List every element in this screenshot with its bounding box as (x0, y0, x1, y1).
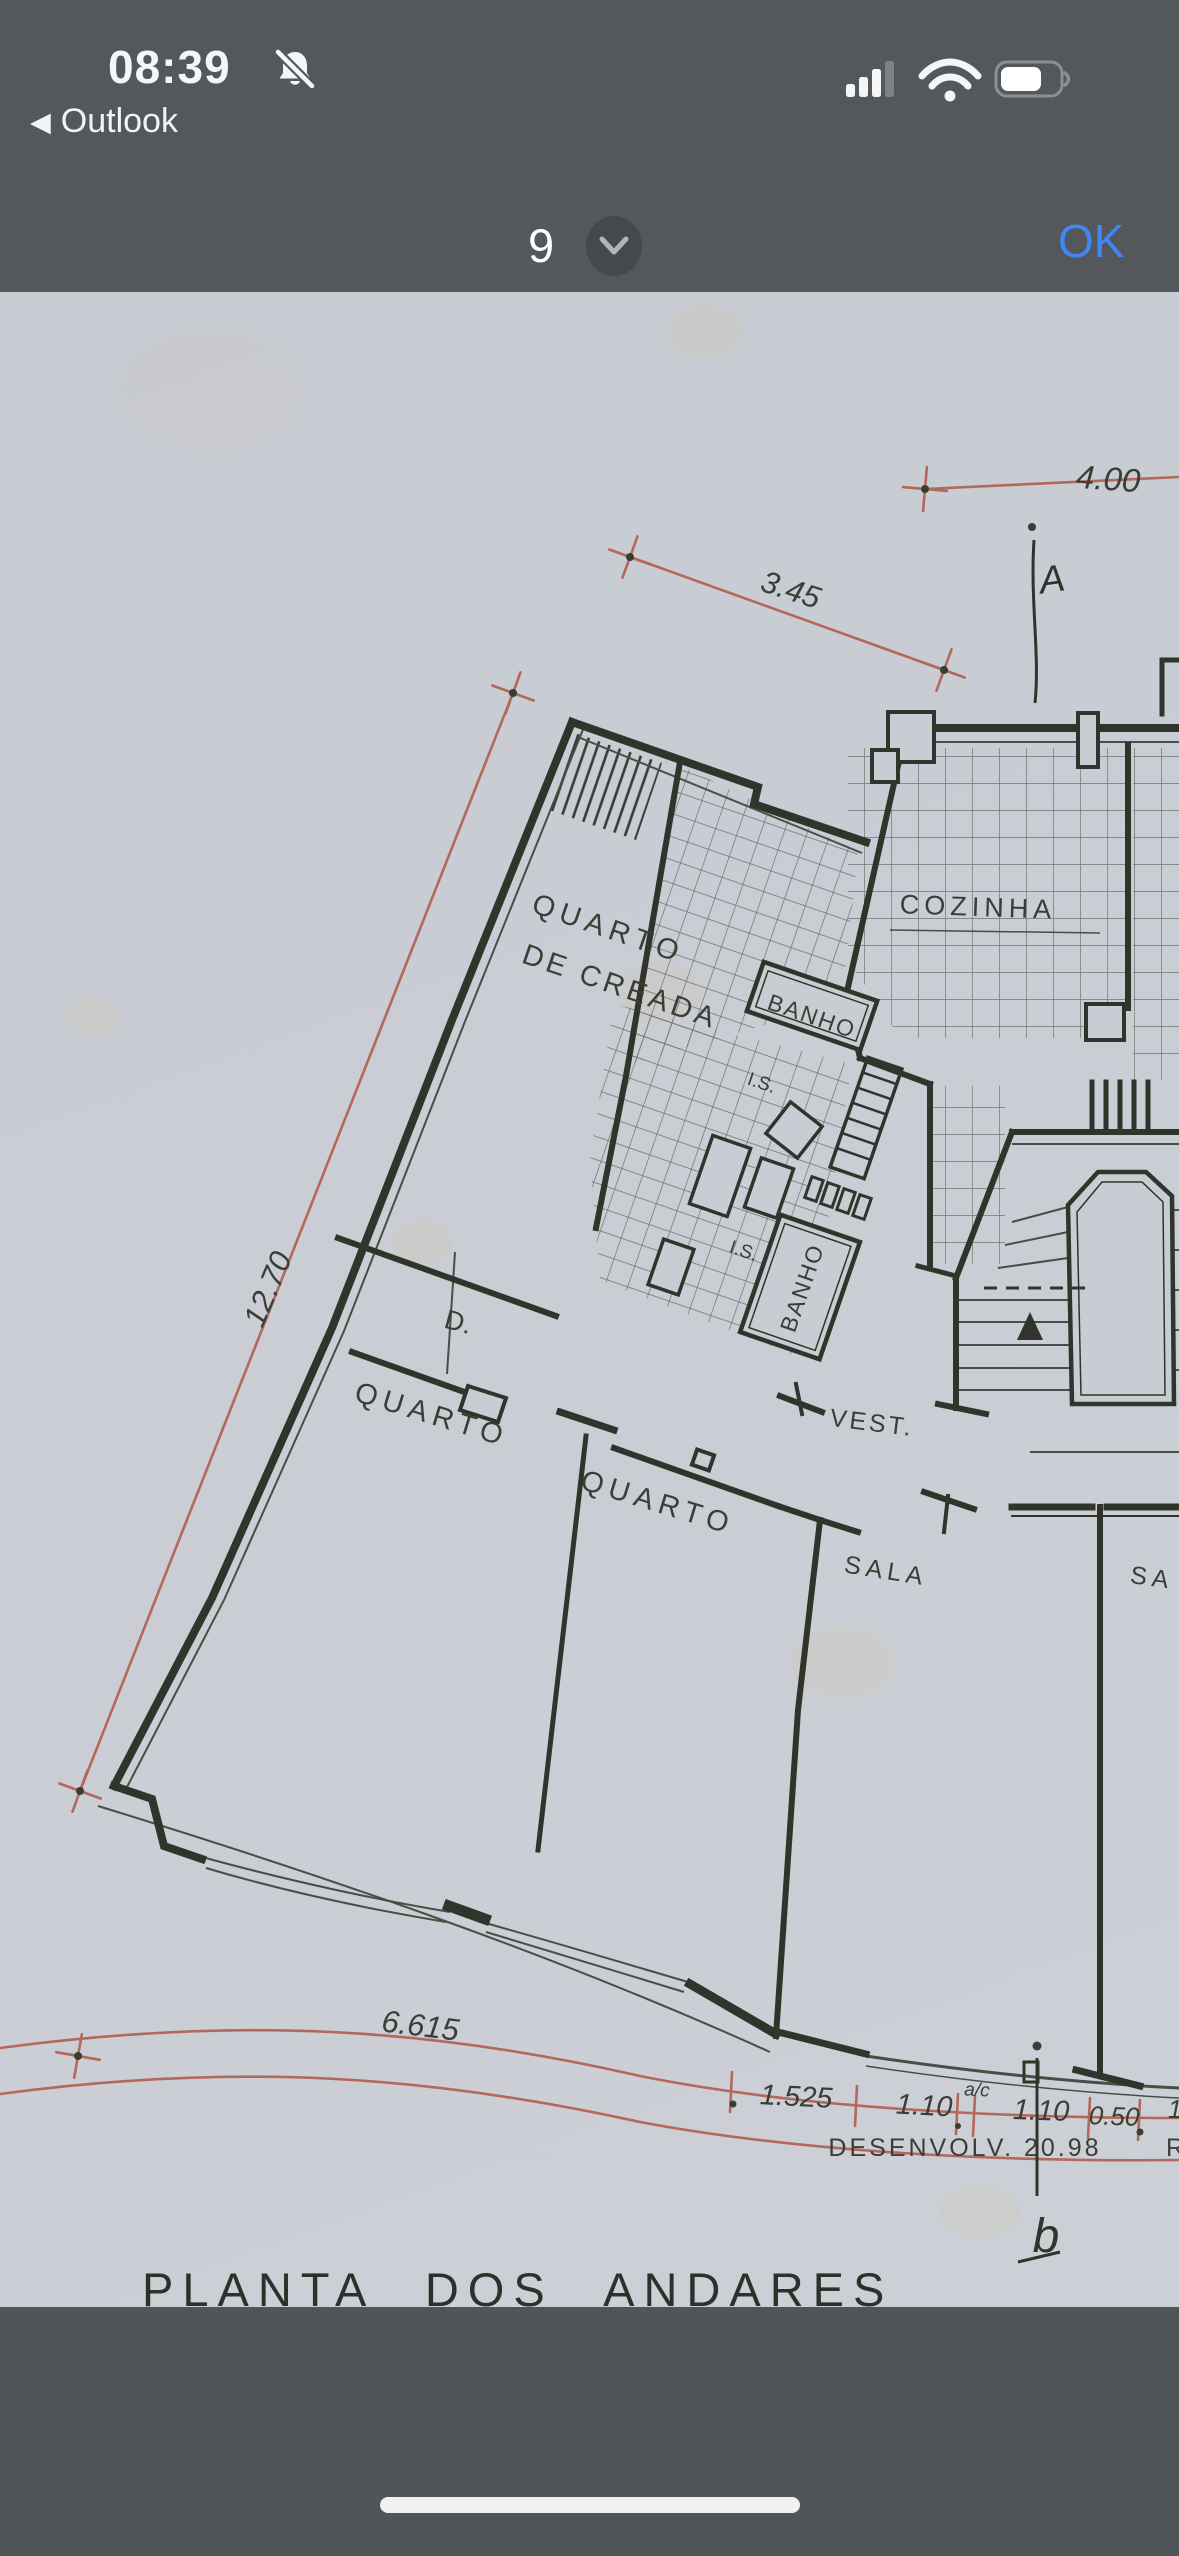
room-label-living: SALA (842, 1551, 929, 1592)
dimension-lines (0, 465, 1179, 2160)
chevron-down-icon (597, 235, 631, 257)
notifications-silenced-icon (272, 46, 318, 97)
floorplan-document[interactable]: QUARTO DE CREADA BANHO I.S. I.S. BANHO C… (0, 292, 1179, 2307)
dim-top: 4.00 (1075, 458, 1142, 499)
page-indicator: 9 (528, 218, 554, 273)
back-to-app-button[interactable]: ◀ Outlook (30, 102, 178, 141)
room-label-closet: D. (441, 1304, 475, 1340)
floor-plan-svg: QUARTO DE CREADA BANHO I.S. I.S. BANHO C… (0, 292, 1179, 2307)
back-app-label: Outlook (61, 102, 178, 141)
dim-left: 12.70 (236, 1246, 299, 1331)
cellular-signal-icon (846, 61, 894, 97)
battery-icon (996, 62, 1069, 96)
room-label-kitchen: COZINHA (899, 889, 1056, 924)
dim-diagonal: 3.45 (757, 564, 826, 616)
dim-development: DESENVOLV. 20.98 (828, 2134, 1101, 2162)
iphone-screen: 08:39 (0, 0, 1179, 2556)
dim-seg-3: 1.10 (1012, 2094, 1070, 2128)
home-indicator[interactable] (380, 2497, 800, 2513)
page-dropdown-button[interactable] (586, 216, 642, 276)
status-nav-header: 08:39 (0, 0, 1179, 292)
room-label-bedroom-2: QUARTO (577, 1464, 738, 1541)
dim-seg-note: a/c (964, 2079, 991, 2101)
dim-partial-right: R (1166, 2134, 1179, 2162)
section-marker-top: A (1035, 557, 1068, 602)
dim-seg-4: 0.50 (1088, 2100, 1140, 2132)
plan-title: PLANTA DOS ANDARES (142, 2263, 893, 2307)
ok-button[interactable]: OK (1058, 214, 1124, 268)
status-icons (846, 58, 1096, 109)
dim-seg-1: 1.525 (759, 2079, 834, 2115)
dim-bottom-left: 6.615 (380, 2003, 462, 2047)
section-marker-bottom: b (1033, 2210, 1060, 2263)
room-label-living-partial: SA (1129, 1561, 1176, 1595)
room-label-bedroom-1: QUARTO (351, 1376, 512, 1453)
dim-seg-5: 1 (1168, 2094, 1179, 2124)
wifi-icon (922, 62, 978, 102)
bottom-toolbar (0, 2307, 1179, 2556)
dim-seg-2: 1.10 (895, 2089, 953, 2124)
room-label-vestibule: VEST. (828, 1404, 915, 1442)
back-arrow-icon: ◀ (30, 107, 51, 138)
clock: 08:39 (108, 40, 231, 94)
